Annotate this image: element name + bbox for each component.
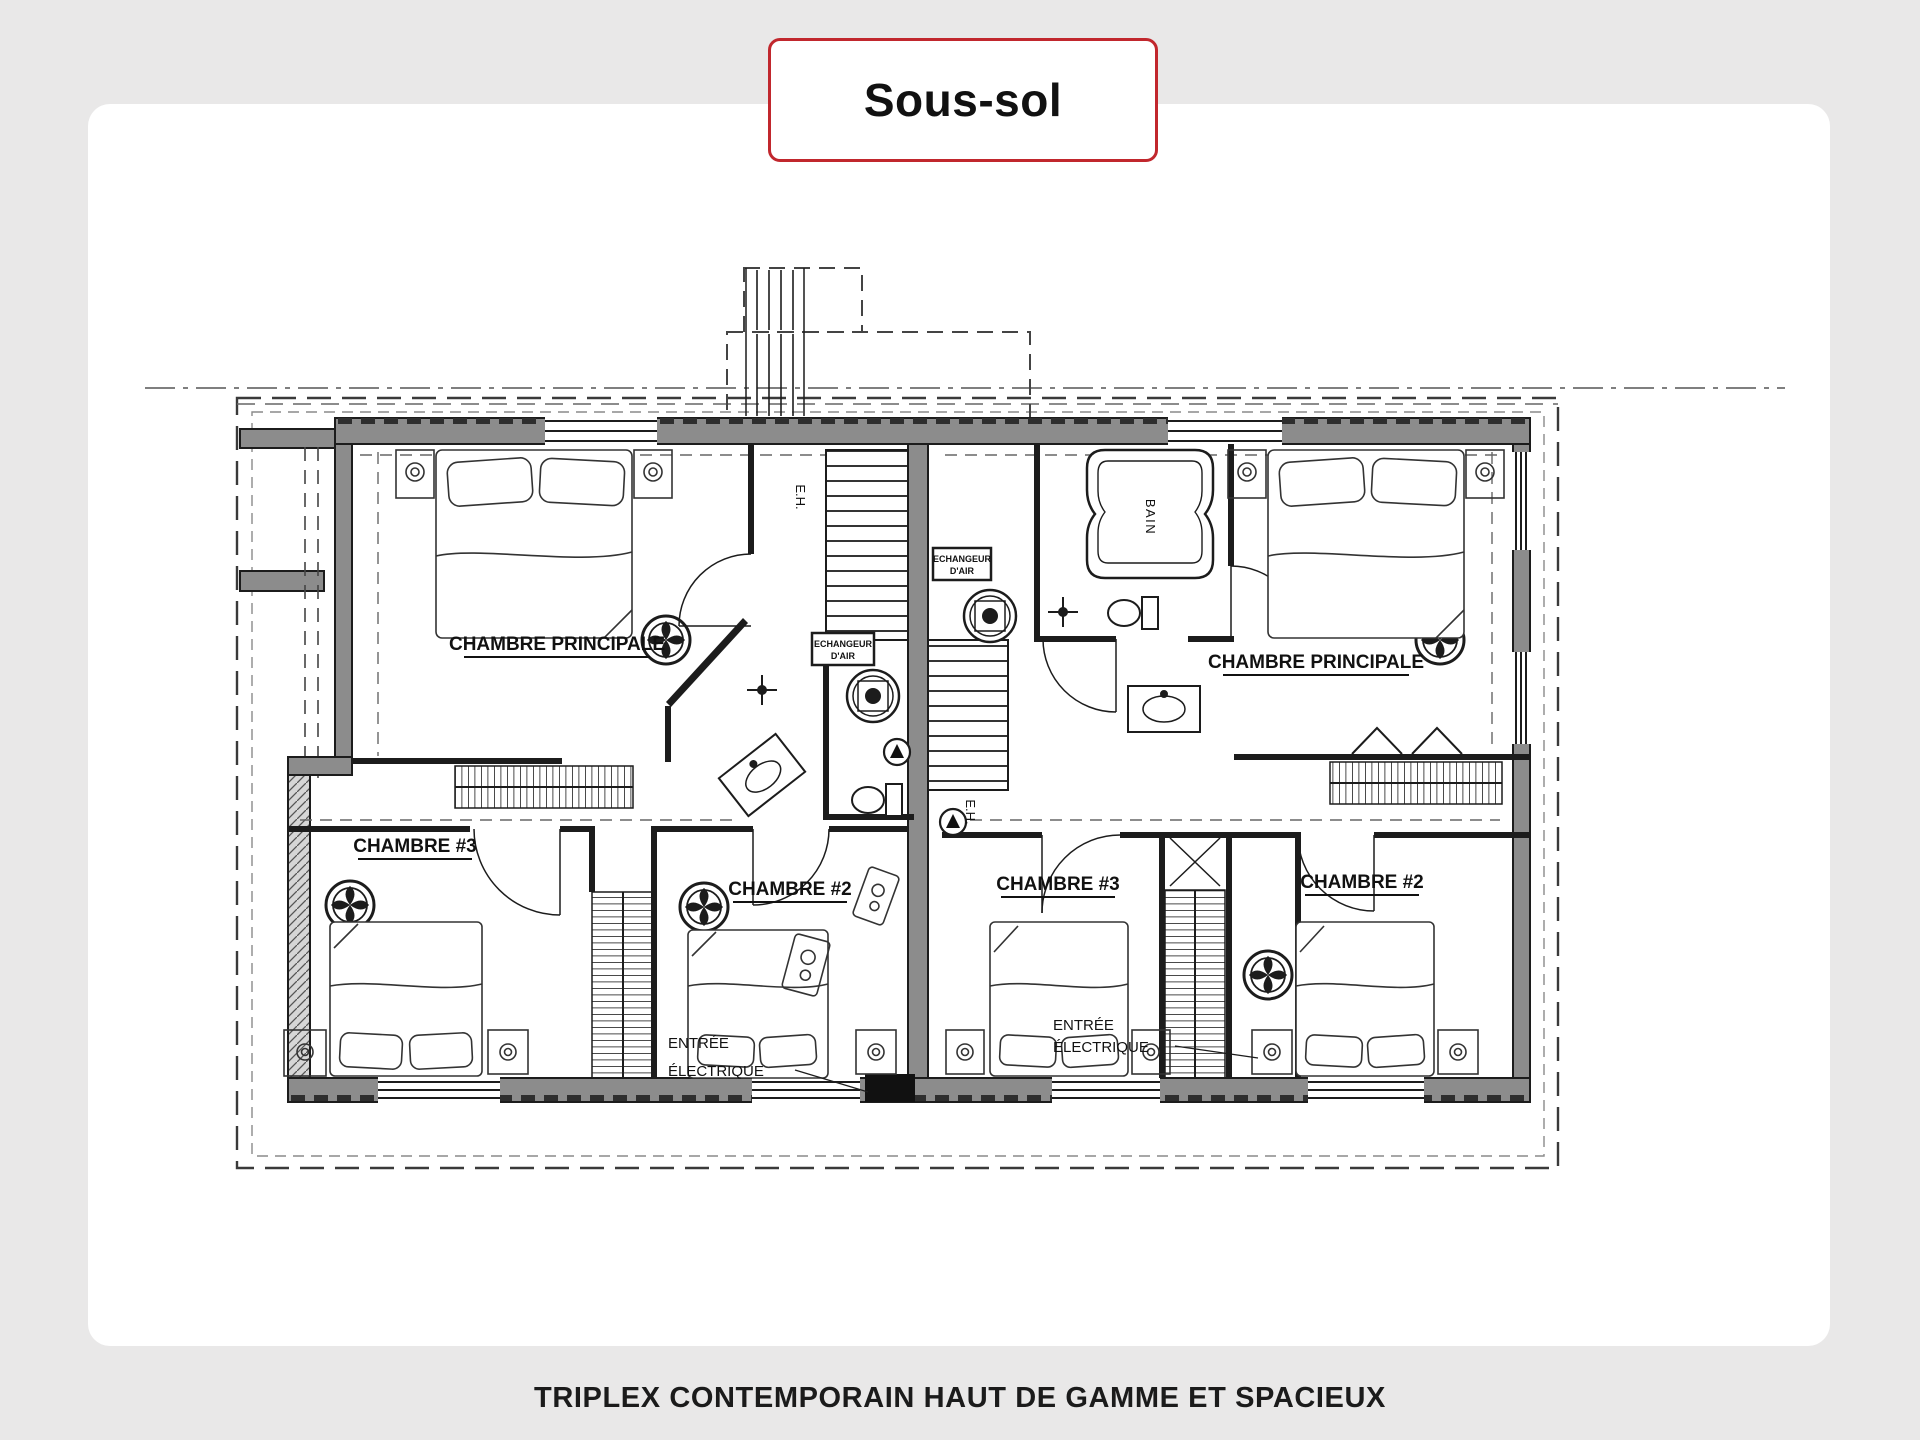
room-label-bedroom3-right: CHAMBRE #3: [996, 874, 1120, 895]
page: { "header": { "title": "Sous-sol" }, "fo…: [0, 0, 1920, 1440]
entry-step: [865, 1074, 915, 1102]
window-top-left: [545, 416, 657, 446]
bed-master-left: [396, 450, 672, 638]
bed-bedroom2-left: [688, 930, 896, 1078]
chair-right-unit: [852, 866, 900, 926]
fan-icon: [1244, 951, 1292, 999]
floor-title: Sous-sol: [864, 73, 1062, 127]
room-label-master-right: CHAMBRE PRINCIPALE: [1208, 652, 1424, 673]
page-caption: TRIPLEX CONTEMPORAIN HAUT DE GAMME ET SP…: [0, 1382, 1920, 1415]
room-label-master-left: CHAMBRE PRINCIPALE: [449, 634, 665, 655]
vanity-right: [1128, 686, 1200, 732]
stair-code-left: E.H.: [793, 484, 808, 509]
left-retaining-walls: [240, 429, 336, 778]
drain-icon: [884, 739, 910, 765]
bath-label: BAIN: [1143, 499, 1158, 535]
air-exchanger-right: ECHANGEUR D'AIR: [933, 548, 1016, 642]
fan-icon: [680, 883, 728, 931]
air-exchanger-left-label2: D'AIR: [831, 651, 856, 661]
ceiling-light-icon: [1048, 597, 1078, 627]
toilet-right: [1108, 597, 1158, 629]
room-label-bedroom2-left: CHAMBRE #2: [728, 879, 852, 900]
floor-title-box: Sous-sol: [768, 38, 1158, 162]
window-bottom-4: [1308, 1076, 1424, 1104]
window-bottom-2: [752, 1076, 860, 1104]
air-exchanger-right-label1: ECHANGEUR: [933, 554, 992, 564]
window-bottom-1: [378, 1076, 500, 1104]
room-label-bedroom2-right: CHAMBRE #2: [1300, 872, 1424, 893]
window-right-2: [1511, 652, 1532, 744]
electrical-entry-right-line1: ENTRÉE: [1053, 1017, 1114, 1034]
electrical-entry-right-line2: ÉLECTRIQUE: [1053, 1039, 1149, 1056]
room-label-bedroom3-left: CHAMBRE #3: [353, 836, 477, 857]
drain-icon: [940, 809, 966, 835]
window-bottom-3: [1052, 1076, 1160, 1104]
toilet-left: [852, 784, 902, 816]
ceiling-light-icon: [747, 675, 777, 705]
window-top-right: [1168, 416, 1282, 446]
bed-bedroom3-left: [284, 922, 528, 1076]
vanity-left: [719, 734, 805, 816]
bed-bedroom2-right: [1252, 922, 1478, 1076]
stairs-left: [826, 450, 908, 640]
floorplan-drawing: ECHANGEUR D'AIR ECHANGEUR D'AIR: [0, 0, 1920, 1440]
air-exchanger-left-label1: ECHANGEUR: [814, 639, 873, 649]
electrical-entry-left-line1: ENTRÉE: [668, 1035, 729, 1052]
stair-code-right: E.H.: [963, 799, 978, 824]
bed-master-right: [1228, 450, 1504, 638]
electrical-entry-left-line2: ÉLECTRIQUE: [668, 1063, 764, 1080]
deck-stairs: [727, 268, 1030, 418]
air-exchanger-right-label2: D'AIR: [950, 566, 975, 576]
window-right-1: [1511, 452, 1532, 550]
stairs-right: [928, 640, 1008, 790]
